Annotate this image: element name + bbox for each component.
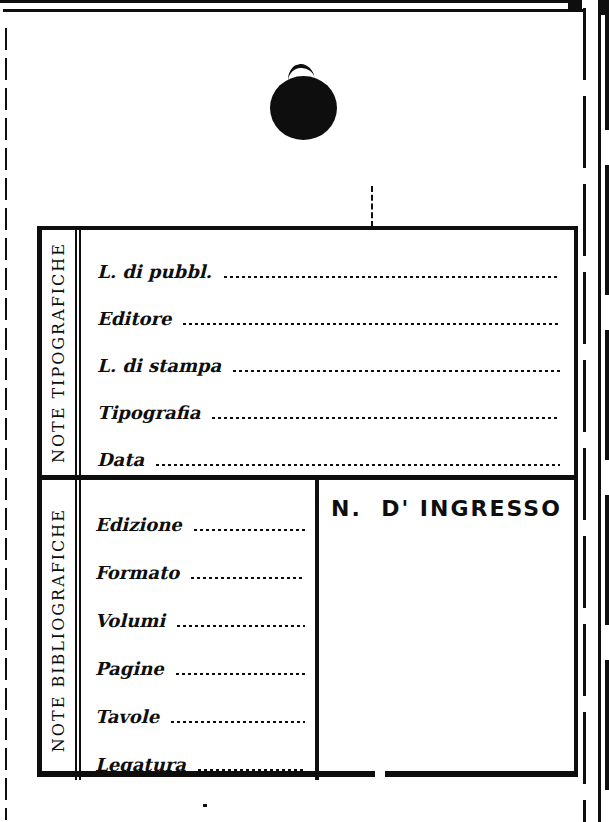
section-note-bibliografiche: NOTE BIBLIOGRAFICHE Edizione Formato Vol… — [42, 480, 574, 780]
dotted-blank-line — [171, 721, 305, 723]
dashed-pointer-line — [371, 186, 373, 227]
field-row-legatura: Legatura — [95, 732, 309, 780]
field-row-volumi: Volumi — [95, 588, 309, 636]
dotted-blank-line — [177, 625, 305, 627]
field-row-luogo-pubblicazione: L. di pubbl. — [97, 240, 566, 287]
field-label: L. di stampa — [97, 357, 221, 381]
scan-right-paper-edge — [605, 0, 609, 822]
hole-punch-arc — [286, 62, 315, 82]
hole-punch-icon — [270, 76, 337, 140]
dotted-blank-line — [233, 370, 560, 372]
side-label-column-tipografiche: NOTE TIPOGRAFICHE — [42, 230, 81, 475]
field-label: Tipografia — [97, 404, 200, 428]
dotted-blank-line — [198, 769, 305, 771]
field-label: Edizione — [95, 516, 182, 540]
dotted-blank-line — [183, 323, 560, 325]
scan-right-edge-line — [583, 8, 586, 822]
dotted-blank-line — [156, 464, 560, 466]
ingresso-panel: N. D' INGRESSO — [319, 480, 574, 780]
side-label-bibliografiche: NOTE BIBLIOGRAFICHE — [49, 508, 68, 752]
field-row-pagine: Pagine — [95, 636, 309, 684]
field-label: Formato — [95, 564, 179, 588]
field-label: L. di pubbl. — [97, 263, 212, 287]
field-row-luogo-stampa: L. di stampa — [97, 334, 566, 381]
scan-border-gap — [375, 769, 385, 780]
section-note-tipografiche: NOTE TIPOGRAFICHE L. di pubbl. Editore L… — [42, 230, 574, 480]
scan-speck — [203, 804, 207, 807]
field-label: Volumi — [95, 612, 165, 636]
fields-area-tipografiche: L. di pubbl. Editore L. di stampa Tipogr… — [81, 230, 574, 475]
field-row-tavole: Tavole — [95, 684, 309, 732]
scan-corner-blob — [568, 0, 582, 10]
field-row-edizione: Edizione — [95, 492, 309, 540]
dotted-blank-line — [191, 577, 305, 579]
field-row-editore: Editore — [97, 287, 566, 334]
scan-top-border-line — [0, 0, 580, 3]
field-label: Legatura — [95, 756, 186, 780]
field-row-data: Data — [97, 428, 566, 475]
scan-right-edge-line-2 — [598, 0, 601, 822]
field-label: Data — [97, 451, 144, 475]
dotted-blank-line — [212, 417, 560, 419]
side-label-column-bibliografiche: NOTE BIBLIOGRAFICHE — [42, 480, 81, 780]
side-label-tipografiche: NOTE TIPOGRAFICHE — [49, 242, 68, 463]
scan-top-border-line-2 — [3, 9, 586, 12]
accession-card-form: NOTE TIPOGRAFICHE L. di pubbl. Editore L… — [37, 226, 578, 777]
field-label: Tavole — [95, 708, 159, 732]
field-label: Editore — [97, 310, 171, 334]
fields-area-bibliografiche: Edizione Formato Volumi Pagine Tavole — [81, 480, 319, 780]
dotted-blank-line — [194, 529, 305, 531]
scanned-card-page: NOTE TIPOGRAFICHE L. di pubbl. Editore L… — [0, 0, 609, 822]
dotted-blank-line — [176, 673, 305, 675]
field-label: Pagine — [95, 660, 164, 684]
field-row-tipografia: Tipografia — [97, 381, 566, 428]
scan-left-edge-line — [5, 20, 7, 820]
dotted-blank-line — [224, 276, 560, 278]
ingresso-title: N. D' INGRESSO — [319, 496, 574, 521]
field-row-formato: Formato — [95, 540, 309, 588]
